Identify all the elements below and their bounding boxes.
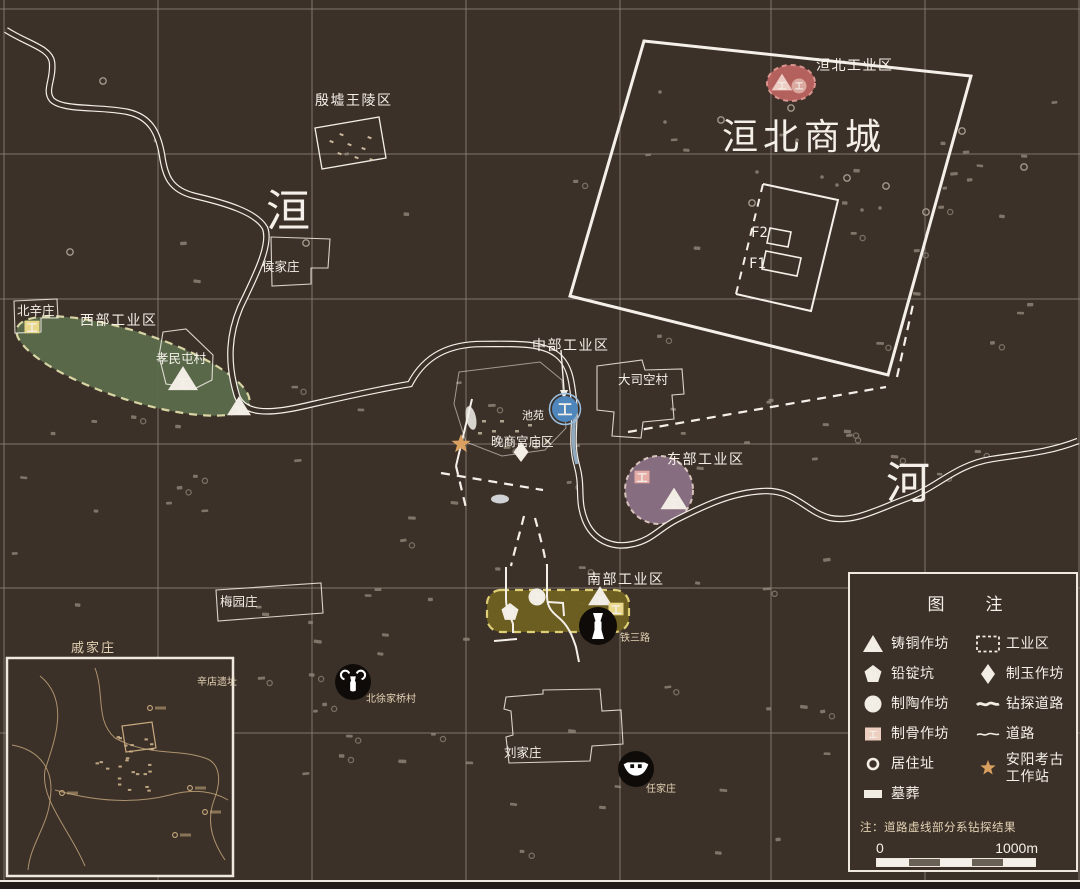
lead-legend-icon: 铅 (860, 662, 886, 686)
xiaomintun-label: 孝民屯村 (156, 352, 207, 366)
legend-item-label: 制骨作坊 (891, 725, 949, 742)
pottery-workshop-marker: 工 (529, 589, 546, 606)
qijiazhuang-label: 戚家庄 (71, 640, 116, 655)
legend-item-label: 钻探道路 (1006, 695, 1064, 712)
inset-map (7, 658, 233, 876)
legend-title: 图 注 (860, 590, 1070, 615)
svg-text:工: 工 (177, 377, 190, 391)
drill-legend-icon (975, 692, 1001, 716)
bone-legend-icon: 工 (860, 722, 886, 746)
legend-item: 玉制玉作坊 (975, 661, 1070, 686)
bronze-legend-icon: 工 (860, 632, 886, 656)
boat-vessel-icon (618, 751, 654, 787)
pottery-workshop-marker: 工 (792, 79, 807, 94)
legend-items: 工铸铜作坊铅铅锭坑工制陶作坊工制骨作坊居住址墓葬工业区玉制玉作坊钻探道路道路安阳… (860, 631, 1070, 806)
dasikong-label: 大司空村 (618, 373, 669, 387)
station-legend-icon (975, 756, 1001, 780)
legend-item-label: 工业区 (1006, 635, 1050, 652)
legend-item-label: 安阳考古工作站 (1006, 751, 1070, 785)
svg-text:工: 工 (668, 497, 679, 510)
zone-legend-icon (975, 632, 1001, 656)
scale-segment (1003, 859, 1035, 866)
liujiazhuang-label: 刘家庄 (504, 745, 542, 760)
palace-temple-label: 晚商宫庙区 (491, 434, 554, 449)
road-legend-icon (975, 722, 1001, 746)
f2-label: F2 (751, 225, 768, 241)
svg-text:铅: 铅 (506, 606, 515, 617)
legend-item-label: 铸铜作坊 (891, 635, 949, 652)
legend-item: 墓葬 (860, 781, 971, 806)
scale-start-label: 0 (876, 840, 884, 856)
legend-item: 钻探道路 (975, 691, 1070, 716)
beixujiaqiao-label: 北徐家桥村 (366, 692, 416, 705)
svg-text:工: 工 (795, 81, 804, 91)
legend-item-label: 墓葬 (891, 785, 920, 802)
scale-bar: 0 1000m (860, 840, 1070, 867)
beixinzhuang-label: 北辛庄 (17, 303, 55, 318)
jade-legend-icon: 玉 (975, 662, 1001, 686)
renjiazhuang-label: 任家庄 (646, 782, 676, 795)
legend-item: 工铸铜作坊 (860, 631, 971, 656)
legend-item: 道路 (975, 721, 1070, 746)
west-zone-label: 西部工业区 (80, 312, 158, 328)
legend-column-right: 工业区玉制玉作坊钻探道路道路安阳考古工作站 (975, 631, 1070, 806)
east-zone-label: 东部工业区 (667, 451, 745, 467)
bone-workshop-marker: 工 (635, 471, 650, 485)
scale-segment (909, 859, 941, 866)
legend-note: 注：道路虚线部分系钻探结果 (860, 819, 1070, 835)
svg-text:工: 工 (868, 642, 877, 652)
legend-item: 工业区 (975, 631, 1070, 656)
tomb-legend-icon (860, 782, 886, 806)
svg-text:玉: 玉 (516, 448, 525, 458)
bone-workshop-marker: 工 (25, 321, 40, 335)
svg-text:工: 工 (234, 406, 244, 417)
scale-segment (877, 859, 909, 866)
legend-item-label: 铅锭坑 (891, 665, 935, 682)
svg-text:工: 工 (27, 322, 38, 335)
svg-text:工: 工 (868, 699, 877, 709)
scale-segment (940, 859, 972, 866)
pond-garden-label: 池苑 (522, 409, 544, 422)
legend-item-label: 道路 (1006, 725, 1035, 742)
svg-text:工: 工 (595, 596, 605, 607)
meiyuanzhuang-label: 梅园庄 (220, 594, 258, 609)
legend-item: 工制骨作坊 (860, 721, 971, 746)
svg-text:铅: 铅 (868, 671, 877, 681)
huanbei-industrial-zone (767, 65, 815, 101)
pond (491, 495, 509, 504)
legend-item: 安阳考古工作站 (975, 751, 1070, 785)
scale-end-label: 1000m (995, 840, 1038, 856)
river-char-huan: 洹 (266, 187, 312, 236)
xindian-site-label: 辛店遗址 (197, 675, 237, 688)
legend-item: 居住址 (860, 751, 971, 776)
svg-text:工: 工 (869, 729, 878, 739)
tiesan-road-label: 铁三路 (620, 631, 650, 644)
yinxu-site-map: 工工工工工工工工铅工工工玉洹北工业区洹北商城殷墟王陵区洹河侯家庄北辛庄西部工业区… (0, 0, 1080, 889)
residence-legend-icon (860, 752, 886, 776)
pottery-legend-icon: 工 (860, 692, 886, 716)
svg-text:工: 工 (558, 401, 573, 418)
south-zone-label: 南部工业区 (587, 571, 665, 587)
svg-text:工: 工 (778, 81, 787, 91)
f1-label: F1 (749, 256, 766, 272)
central-zone-label: 中部工业区 (532, 337, 610, 353)
svg-text:工: 工 (637, 472, 648, 485)
legend-item-label: 制陶作坊 (891, 695, 949, 712)
legend-column-left: 工铸铜作坊铅铅锭坑工制陶作坊工制骨作坊居住址墓葬 (860, 631, 971, 806)
svg-text:工: 工 (532, 593, 542, 604)
svg-text:玉: 玉 (984, 669, 993, 679)
scale-segment (972, 859, 1004, 866)
bronze-gu-icon (579, 607, 617, 645)
huanbei-city-label: 洹北商城 (722, 116, 886, 157)
scale-bar-segments (876, 858, 1036, 867)
houjiazhuang-label: 侯家庄 (262, 259, 300, 274)
legend-item: 铅铅锭坑 (860, 661, 971, 686)
legend-panel: 图 注 工铸铜作坊铅铅锭坑工制陶作坊工制骨作坊居住址墓葬工业区玉制玉作坊钻探道路… (848, 572, 1078, 872)
legend-item-label: 制玉作坊 (1006, 665, 1064, 682)
royal-tombs-label: 殷墟王陵区 (315, 92, 393, 108)
legend-item-label: 居住址 (891, 755, 935, 772)
river-char-he: 河 (886, 459, 932, 508)
huanbei-industrial-zone-label: 洹北工业区 (816, 57, 894, 73)
pottery-workshop-marker: 工 (550, 394, 581, 425)
legend-item: 工制陶作坊 (860, 691, 971, 716)
